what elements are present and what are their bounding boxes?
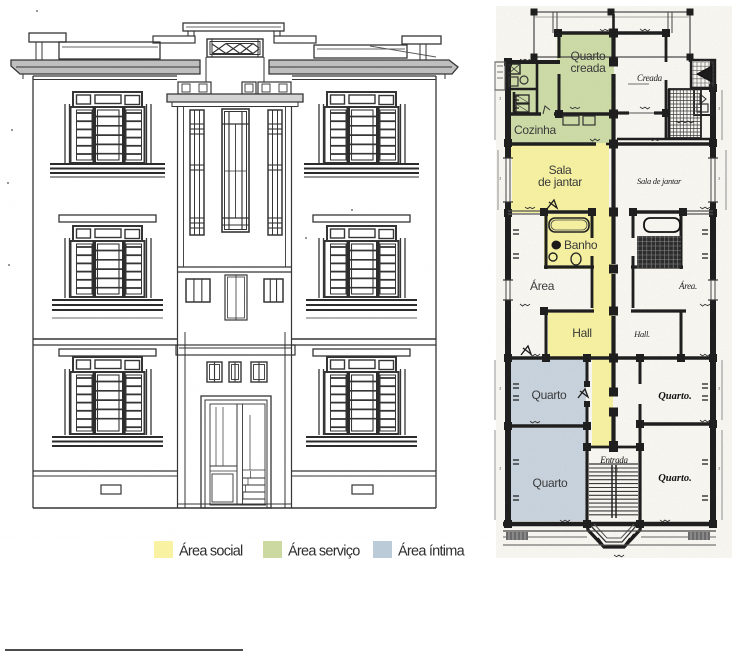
svg-text:Área social: Área social — [179, 543, 243, 560]
svg-text:Área íntima: Área íntima — [398, 543, 466, 560]
svg-text:Área serviço: Área serviço — [288, 543, 360, 560]
